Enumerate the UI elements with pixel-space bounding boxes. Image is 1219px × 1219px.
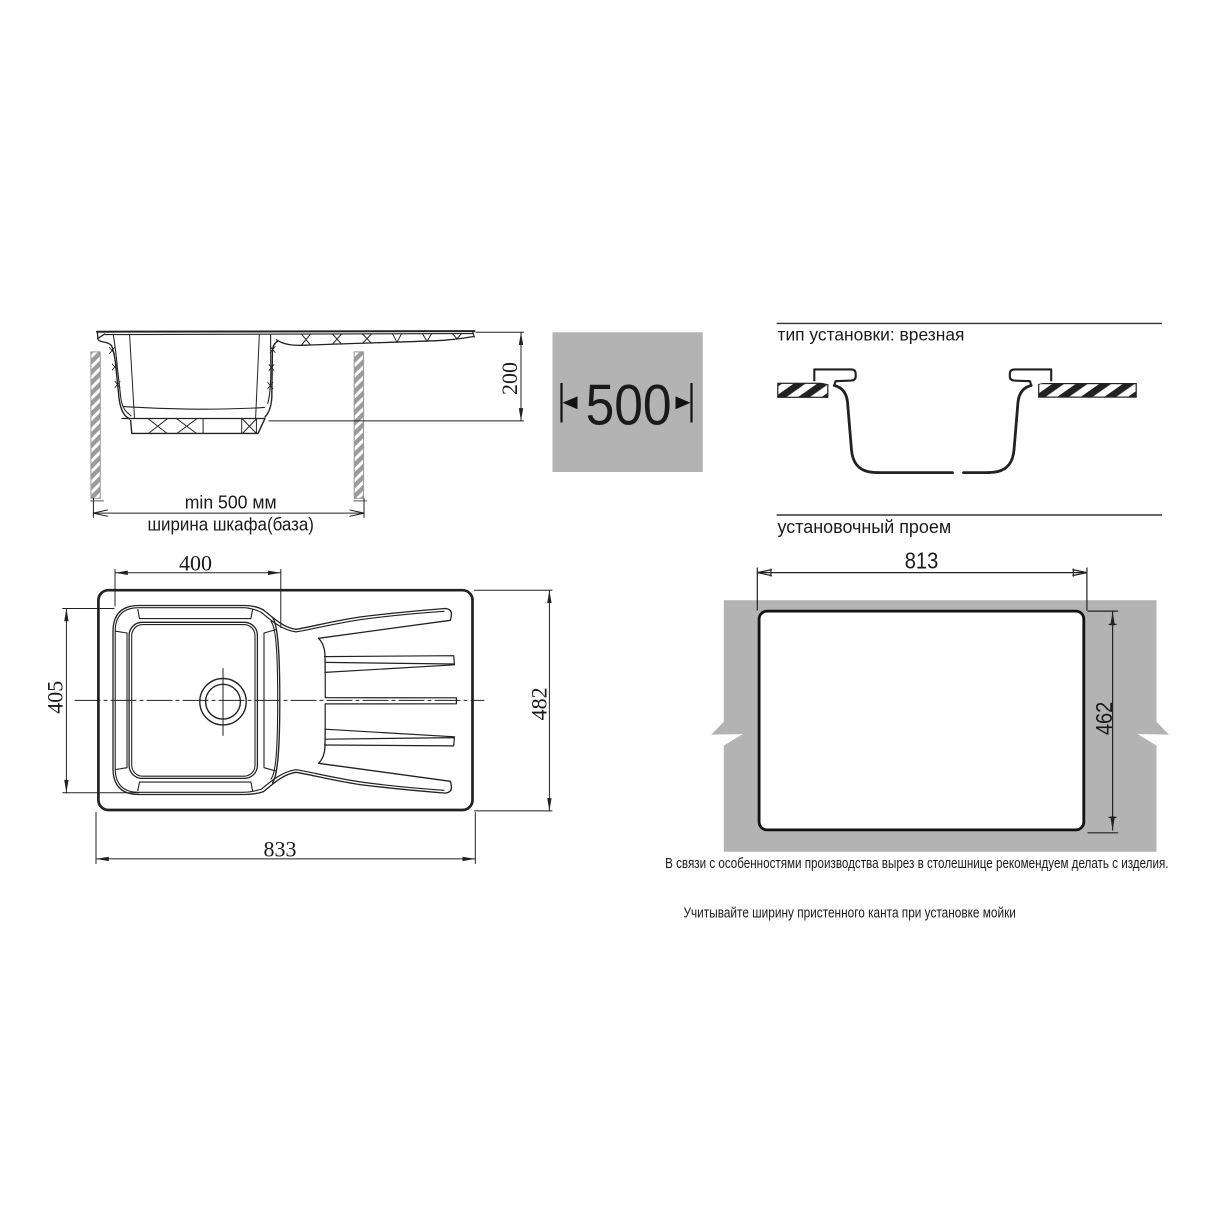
svg-text:462: 462 — [1091, 702, 1117, 736]
svg-text:482: 482 — [527, 687, 552, 720]
svg-text:В связи с особенностями произв: В связи с особенностями производства выр… — [665, 855, 1168, 872]
svg-text:ширина шкафа(база): ширина шкафа(база) — [147, 514, 314, 535]
svg-text:813: 813 — [905, 548, 939, 574]
svg-text:min 500 мм: min 500 мм — [185, 492, 277, 513]
svg-text:200: 200 — [497, 362, 522, 395]
svg-text:405: 405 — [42, 681, 67, 714]
svg-text:400: 400 — [179, 550, 212, 575]
svg-text:500: 500 — [586, 373, 672, 437]
svg-text:Учитывайте ширину пристенного: Учитывайте ширину пристенного канта при … — [684, 905, 1016, 922]
svg-text:тип установки: врезная: тип установки: врезная — [778, 324, 965, 344]
svg-text:установочный проем: установочный проем — [778, 517, 952, 537]
svg-text:833: 833 — [264, 836, 297, 861]
